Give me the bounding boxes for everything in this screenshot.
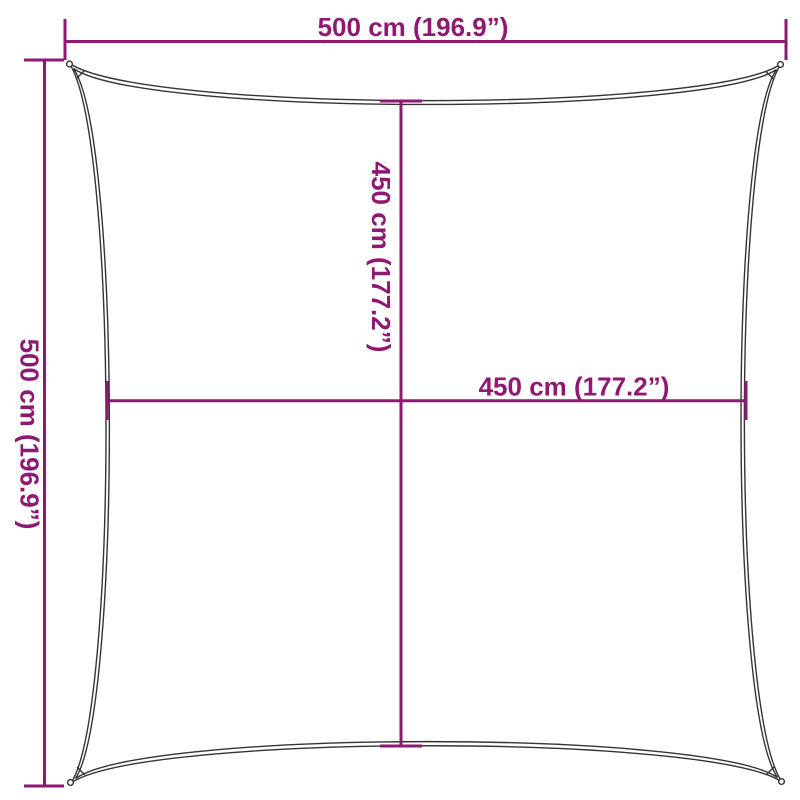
svg-text:500 cm (196.9”): 500 cm (196.9”): [318, 12, 509, 42]
svg-text:450 cm (177.2”): 450 cm (177.2”): [479, 372, 670, 402]
svg-text:500 cm (196.9”): 500 cm (196.9”): [15, 339, 45, 530]
svg-text:450 cm (177.2”): 450 cm (177.2”): [366, 162, 396, 353]
